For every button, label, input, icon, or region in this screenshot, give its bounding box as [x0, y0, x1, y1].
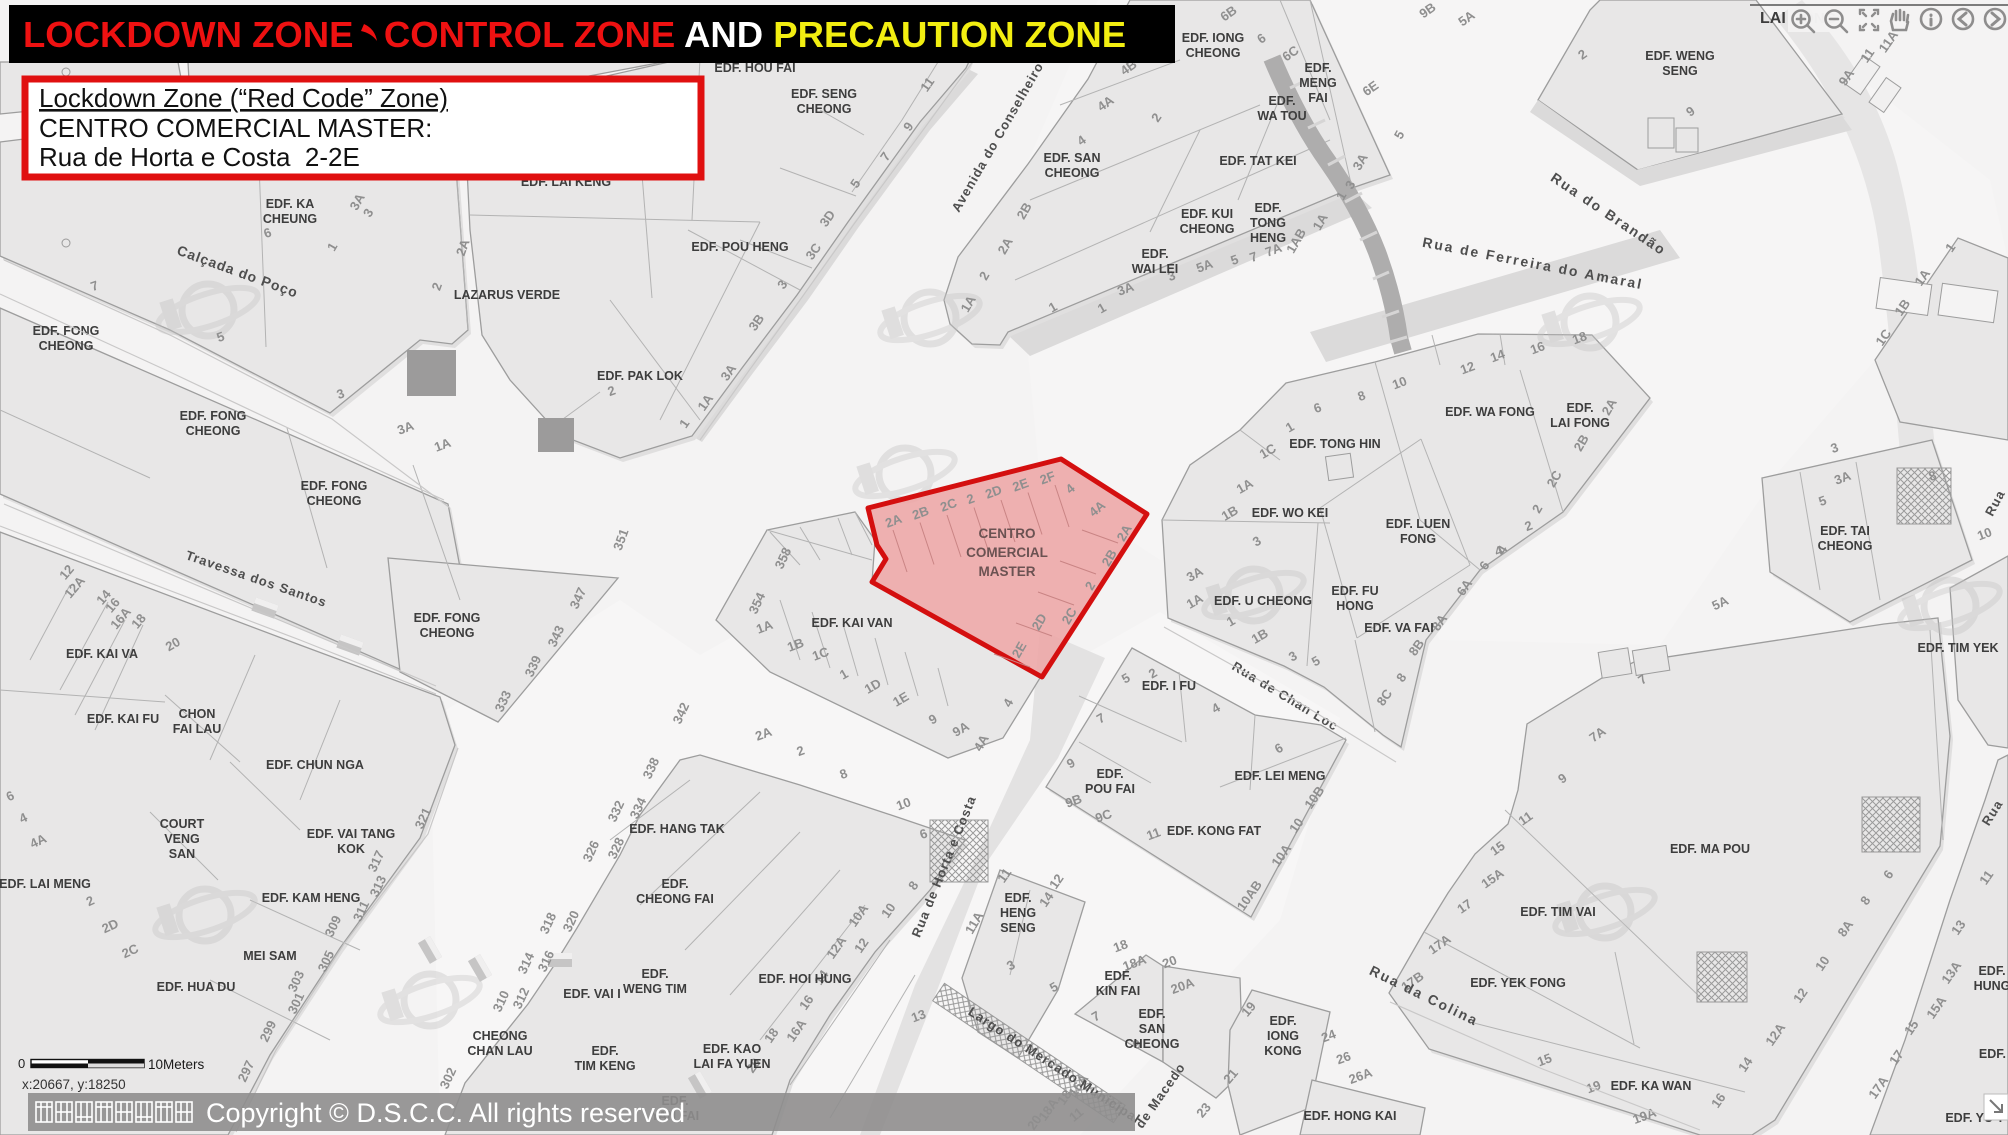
svg-text:EDF. SENG: EDF. SENG — [791, 87, 857, 101]
svg-text:EDF. IONG: EDF. IONG — [1182, 31, 1245, 45]
svg-text:EDF.: EDF. — [1304, 61, 1331, 75]
svg-text:WENG TIM: WENG TIM — [623, 982, 687, 996]
svg-text:EDF. SAN: EDF. SAN — [1044, 151, 1101, 165]
svg-text:EDF. POU HENG: EDF. POU HENG — [691, 240, 788, 254]
svg-text:EDF. VA FAI: EDF. VA FAI — [1364, 621, 1433, 635]
svg-text:LOCKDOWN ZONE CONTROL ZONE A: LOCKDOWN ZONE CONTROL ZONE AND PRECAUTIO… — [23, 14, 1126, 55]
svg-text:FAI: FAI — [1308, 91, 1327, 105]
svg-text:EDF. HUA DU: EDF. HUA DU — [157, 980, 236, 994]
svg-text:EDF. F: EDF. F — [1979, 1047, 2008, 1061]
svg-text:EDF. HONG KAI: EDF. HONG KAI — [1303, 1109, 1396, 1123]
svg-text:EDF. PAK LOK: EDF. PAK LOK — [597, 369, 683, 383]
svg-text:EDF. LAI MENG: EDF. LAI MENG — [0, 877, 91, 891]
svg-text:EDF. KAM HENG: EDF. KAM HENG — [262, 891, 361, 905]
svg-text:EDF.: EDF. — [1978, 964, 2005, 978]
svg-text:EDF. YEK FONG: EDF. YEK FONG — [1470, 976, 1566, 990]
svg-text:CHEONG FAI: CHEONG FAI — [636, 892, 714, 906]
svg-text:HUNG: HUNG — [1974, 979, 2008, 993]
svg-text:EDF. KAO: EDF. KAO — [703, 1042, 762, 1056]
svg-text:EDF. VAI I: EDF. VAI I — [563, 987, 620, 1001]
svg-text:EDF. KAI VAN: EDF. KAI VAN — [811, 616, 892, 630]
svg-text:EDF. U CHEONG: EDF. U CHEONG — [1214, 594, 1312, 608]
svg-text:TONG: TONG — [1250, 216, 1286, 230]
svg-text:COURT: COURT — [160, 817, 205, 831]
svg-text:EDF.: EDF. — [1254, 201, 1281, 215]
svg-text:FONG: FONG — [1400, 532, 1436, 546]
svg-text:CHEONG: CHEONG — [1180, 222, 1235, 236]
svg-text:HENG: HENG — [1000, 906, 1036, 920]
svg-text:EDF. KA: EDF. KA — [266, 197, 315, 211]
svg-text:EDF. HOI HUNG: EDF. HOI HUNG — [758, 972, 851, 986]
svg-text:EDF.: EDF. — [1138, 1007, 1165, 1021]
svg-text:EDF. WA FONG: EDF. WA FONG — [1445, 405, 1535, 419]
svg-text:CHEONG: CHEONG — [473, 1029, 528, 1043]
svg-text:EDF. WO KEI: EDF. WO KEI — [1252, 506, 1328, 520]
svg-text:HONG: HONG — [1336, 599, 1374, 613]
svg-text:LAI FA YUEN: LAI FA YUEN — [693, 1057, 770, 1071]
svg-text:TIM KENG: TIM KENG — [574, 1059, 635, 1073]
svg-text:IONG: IONG — [1267, 1029, 1299, 1043]
svg-text:MEI SAM: MEI SAM — [243, 949, 296, 963]
svg-text:EDF. KUI: EDF. KUI — [1181, 207, 1233, 221]
svg-text:EDF. VAI TANG: EDF. VAI TANG — [307, 827, 395, 841]
svg-text:MASTER: MASTER — [979, 564, 1036, 579]
svg-text:CENTRO: CENTRO — [979, 526, 1036, 541]
svg-text:CHEUNG: CHEUNG — [263, 212, 317, 226]
svg-text:EDF. TIM YEK: EDF. TIM YEK — [1917, 641, 1998, 655]
svg-text:COMERCIAL: COMERCIAL — [966, 545, 1048, 560]
svg-text:Lockdown Zone (“Red Code” Zone: Lockdown Zone (“Red Code” Zone) — [39, 83, 448, 113]
svg-text:EDF. KA WAN: EDF. KA WAN — [1611, 1079, 1692, 1093]
svg-text:EDF. WENG: EDF. WENG — [1645, 49, 1714, 63]
svg-text:CHEONG: CHEONG — [307, 494, 362, 508]
svg-text:SENG: SENG — [1000, 921, 1035, 935]
svg-text:Copyright © D.S.C.C. All right: Copyright © D.S.C.C. All rights reserved — [206, 1098, 685, 1128]
svg-text:EDF. HOU FAI: EDF. HOU FAI — [714, 61, 795, 75]
svg-text:CENTRO COMERCIAL MASTER:: CENTRO COMERCIAL MASTER: — [39, 113, 432, 143]
svg-text:HENG: HENG — [1250, 231, 1286, 245]
svg-text:WA TOU: WA TOU — [1257, 109, 1306, 123]
svg-text:EDF.: EDF. — [591, 1044, 618, 1058]
svg-text:EDF. FU: EDF. FU — [1331, 584, 1378, 598]
svg-text:EDF. TIM VAI: EDF. TIM VAI — [1520, 905, 1595, 919]
svg-text:CHEONG: CHEONG — [1818, 539, 1873, 553]
svg-text:EDF. HANG TAK: EDF. HANG TAK — [629, 822, 725, 836]
svg-text:CHEONG: CHEONG — [1125, 1037, 1180, 1051]
svg-text:EDF.: EDF. — [641, 967, 668, 981]
svg-text:EDF. KAI VA: EDF. KAI VA — [66, 647, 138, 661]
svg-text:SENG: SENG — [1662, 64, 1697, 78]
svg-text:LAI: LAI — [1760, 10, 1786, 27]
svg-text:SAN: SAN — [169, 847, 195, 861]
svg-text:WAI LEI: WAI LEI — [1132, 262, 1179, 276]
svg-text:Rua de Horta e Costa 2-2E: Rua de Horta e Costa 2-2E — [39, 142, 360, 172]
svg-text:EDF. FONG: EDF. FONG — [33, 324, 100, 338]
svg-text:EDF. FONG: EDF. FONG — [414, 611, 481, 625]
svg-text:EDF.: EDF. — [1096, 767, 1123, 781]
svg-text:LAI FONG: LAI FONG — [1550, 416, 1610, 430]
svg-text:CHEONG: CHEONG — [1045, 166, 1100, 180]
svg-text:EDF.: EDF. — [661, 877, 688, 891]
svg-text:EDF.: EDF. — [1141, 247, 1168, 261]
svg-text:CHAN LAU: CHAN LAU — [467, 1044, 532, 1058]
svg-text:0: 0 — [18, 1056, 25, 1071]
svg-text:KONG: KONG — [1264, 1044, 1302, 1058]
svg-text:CHON: CHON — [179, 707, 216, 721]
svg-text:KIN FAI: KIN FAI — [1096, 984, 1140, 998]
svg-text:POU FAI: POU FAI — [1085, 782, 1135, 796]
svg-text:EDF. KAI FU: EDF. KAI FU — [87, 712, 159, 726]
svg-text:EDF.: EDF. — [1269, 1014, 1296, 1028]
svg-text:FAI LAU: FAI LAU — [173, 722, 222, 736]
svg-text:EDF.: EDF. — [1268, 94, 1295, 108]
svg-text:CHEONG: CHEONG — [186, 424, 241, 438]
svg-text:EDF.: EDF. — [1566, 401, 1593, 415]
svg-text:10Meters: 10Meters — [148, 1057, 205, 1072]
svg-text:CHEONG: CHEONG — [797, 102, 852, 116]
svg-text:EDF.: EDF. — [1004, 891, 1031, 905]
svg-text:CHEONG: CHEONG — [1186, 46, 1241, 60]
svg-text:EDF. TAI: EDF. TAI — [1820, 524, 1870, 538]
svg-text:VENG: VENG — [164, 832, 199, 846]
svg-text:EDF. CHUN NGA: EDF. CHUN NGA — [266, 758, 364, 772]
svg-text:EDF. LEI MENG: EDF. LEI MENG — [1235, 769, 1326, 783]
svg-text:MENG: MENG — [1299, 76, 1337, 90]
svg-text:EDF. FONG: EDF. FONG — [180, 409, 247, 423]
svg-text:SAN: SAN — [1139, 1022, 1165, 1036]
svg-text:EDF. KONG FAT: EDF. KONG FAT — [1167, 824, 1262, 838]
svg-text:EDF. FONG: EDF. FONG — [301, 479, 368, 493]
svg-text:LAZARUS VERDE: LAZARUS VERDE — [454, 288, 560, 302]
svg-text:EDF. TONG HIN: EDF. TONG HIN — [1289, 437, 1380, 451]
svg-text:x:20667, y:18250: x:20667, y:18250 — [22, 1077, 126, 1092]
svg-text:EDF. MA POU: EDF. MA POU — [1670, 842, 1750, 856]
svg-text:EDF.: EDF. — [1104, 969, 1131, 983]
svg-text:CHEONG: CHEONG — [39, 339, 94, 353]
svg-text:KOK: KOK — [337, 842, 365, 856]
svg-text:CHEONG: CHEONG — [420, 626, 475, 640]
svg-text:EDF. I FU: EDF. I FU — [1142, 679, 1196, 693]
svg-text:EDF. LUEN: EDF. LUEN — [1386, 517, 1451, 531]
svg-text:EDF. TAT KEI: EDF. TAT KEI — [1219, 154, 1296, 168]
